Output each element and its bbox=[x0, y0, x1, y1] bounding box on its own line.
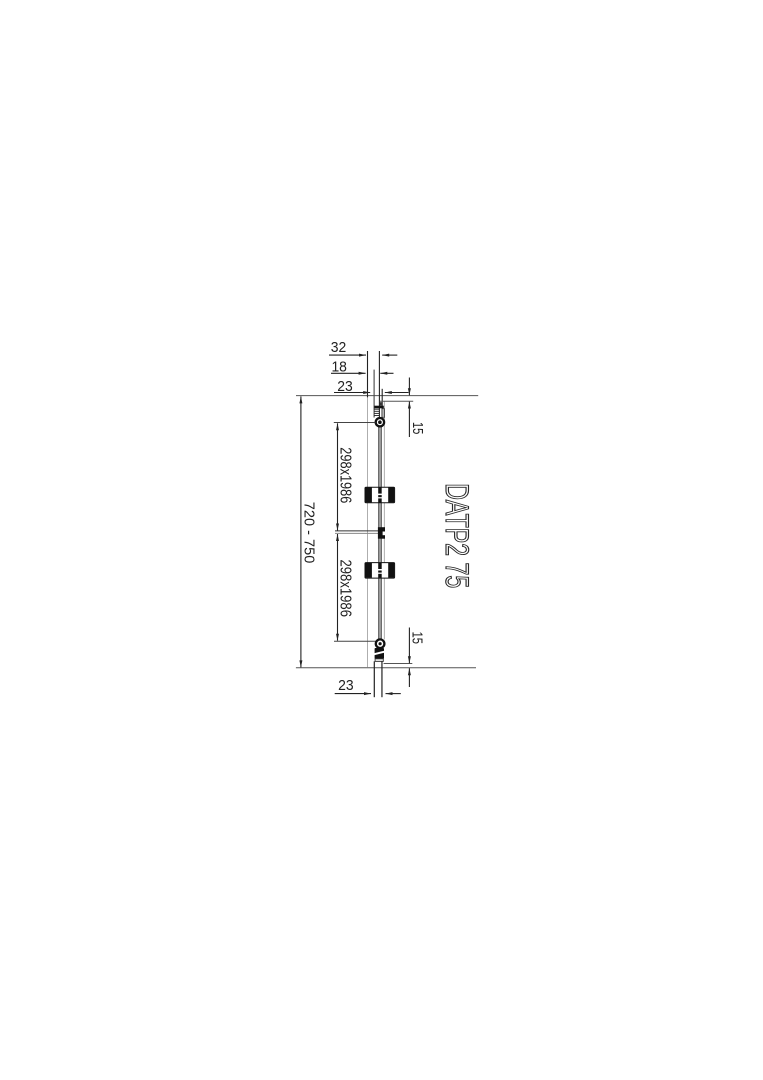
svg-text:23: 23 bbox=[338, 677, 354, 694]
svg-text:298x1986: 298x1986 bbox=[337, 560, 354, 618]
svg-text:15: 15 bbox=[409, 422, 426, 435]
svg-text:720 - 750: 720 - 750 bbox=[301, 502, 317, 564]
svg-text:15: 15 bbox=[408, 632, 425, 645]
svg-text:32: 32 bbox=[331, 339, 347, 356]
svg-text:298x1986: 298x1986 bbox=[337, 447, 354, 503]
svg-text:DATP2 75: DATP2 75 bbox=[439, 483, 475, 588]
svg-text:18: 18 bbox=[331, 359, 347, 376]
svg-text:23: 23 bbox=[337, 378, 353, 395]
